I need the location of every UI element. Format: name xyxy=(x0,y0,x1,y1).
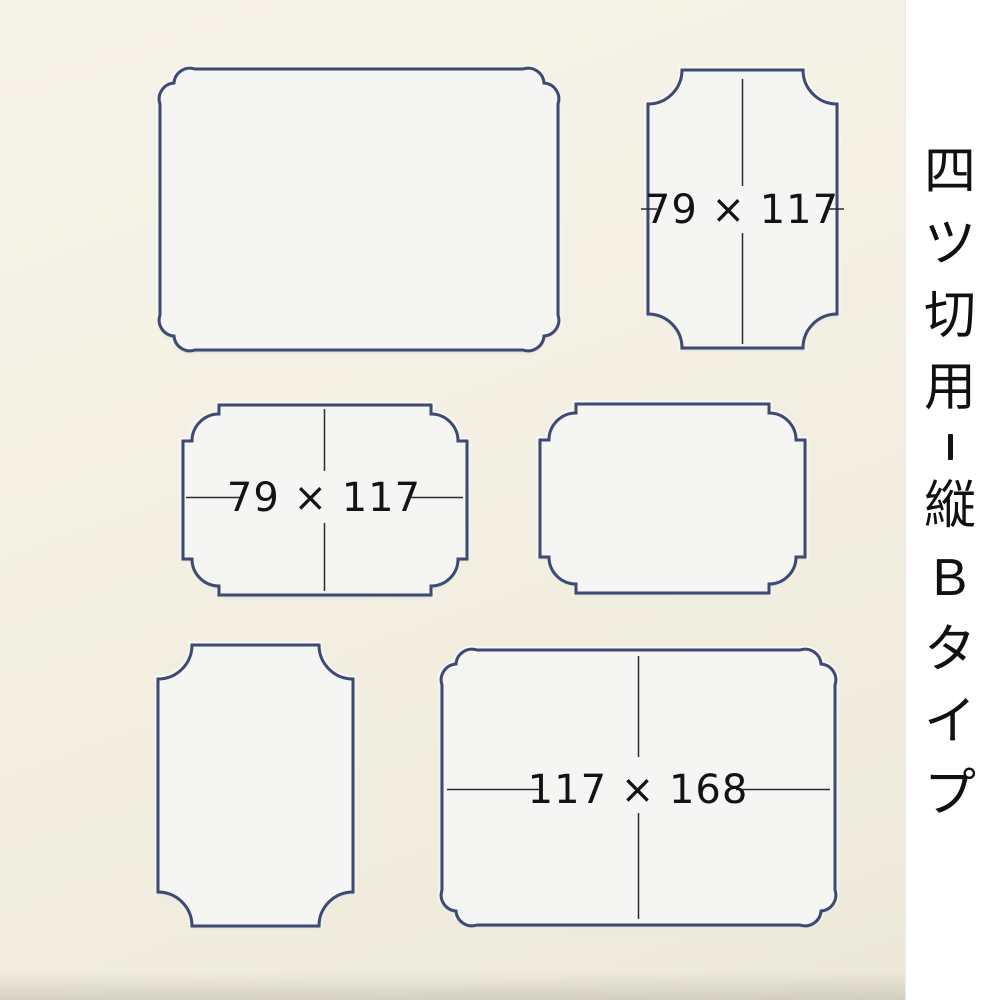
caption-char: 切 xyxy=(924,290,976,342)
caption-char: タ xyxy=(924,624,976,676)
mat-board: 79 × 117 79 × 117 117 × 168 xyxy=(0,0,905,1000)
vertical-caption: 四ツ切用縦Bタイプ xyxy=(920,146,980,820)
product-photo: 79 × 117 79 × 117 117 × 168 四ツ切用縦Bタイプ xyxy=(0,0,1000,1000)
caption-char: 四 xyxy=(924,146,976,198)
caption-char: 用 xyxy=(924,362,976,414)
dimension-label-bottom-right: 117 × 168 xyxy=(528,767,749,813)
caption-char: プ xyxy=(924,768,976,820)
caption-char: B xyxy=(933,552,968,604)
dimension-label-top-right: 79 × 117 xyxy=(645,187,839,233)
mat-board-photo: 79 × 117 79 × 117 117 × 168 xyxy=(0,0,905,1000)
caption-hyphen xyxy=(948,434,953,460)
mat-window-middle-right xyxy=(540,404,805,593)
mat-window-bottom-left xyxy=(158,645,353,926)
caption-char: ツ xyxy=(924,218,976,270)
caption-char: イ xyxy=(924,696,976,748)
caption-char: 縦 xyxy=(924,480,976,532)
dimension-label-middle-left: 79 × 117 xyxy=(227,475,421,521)
mat-window-top-left-large xyxy=(159,68,559,351)
